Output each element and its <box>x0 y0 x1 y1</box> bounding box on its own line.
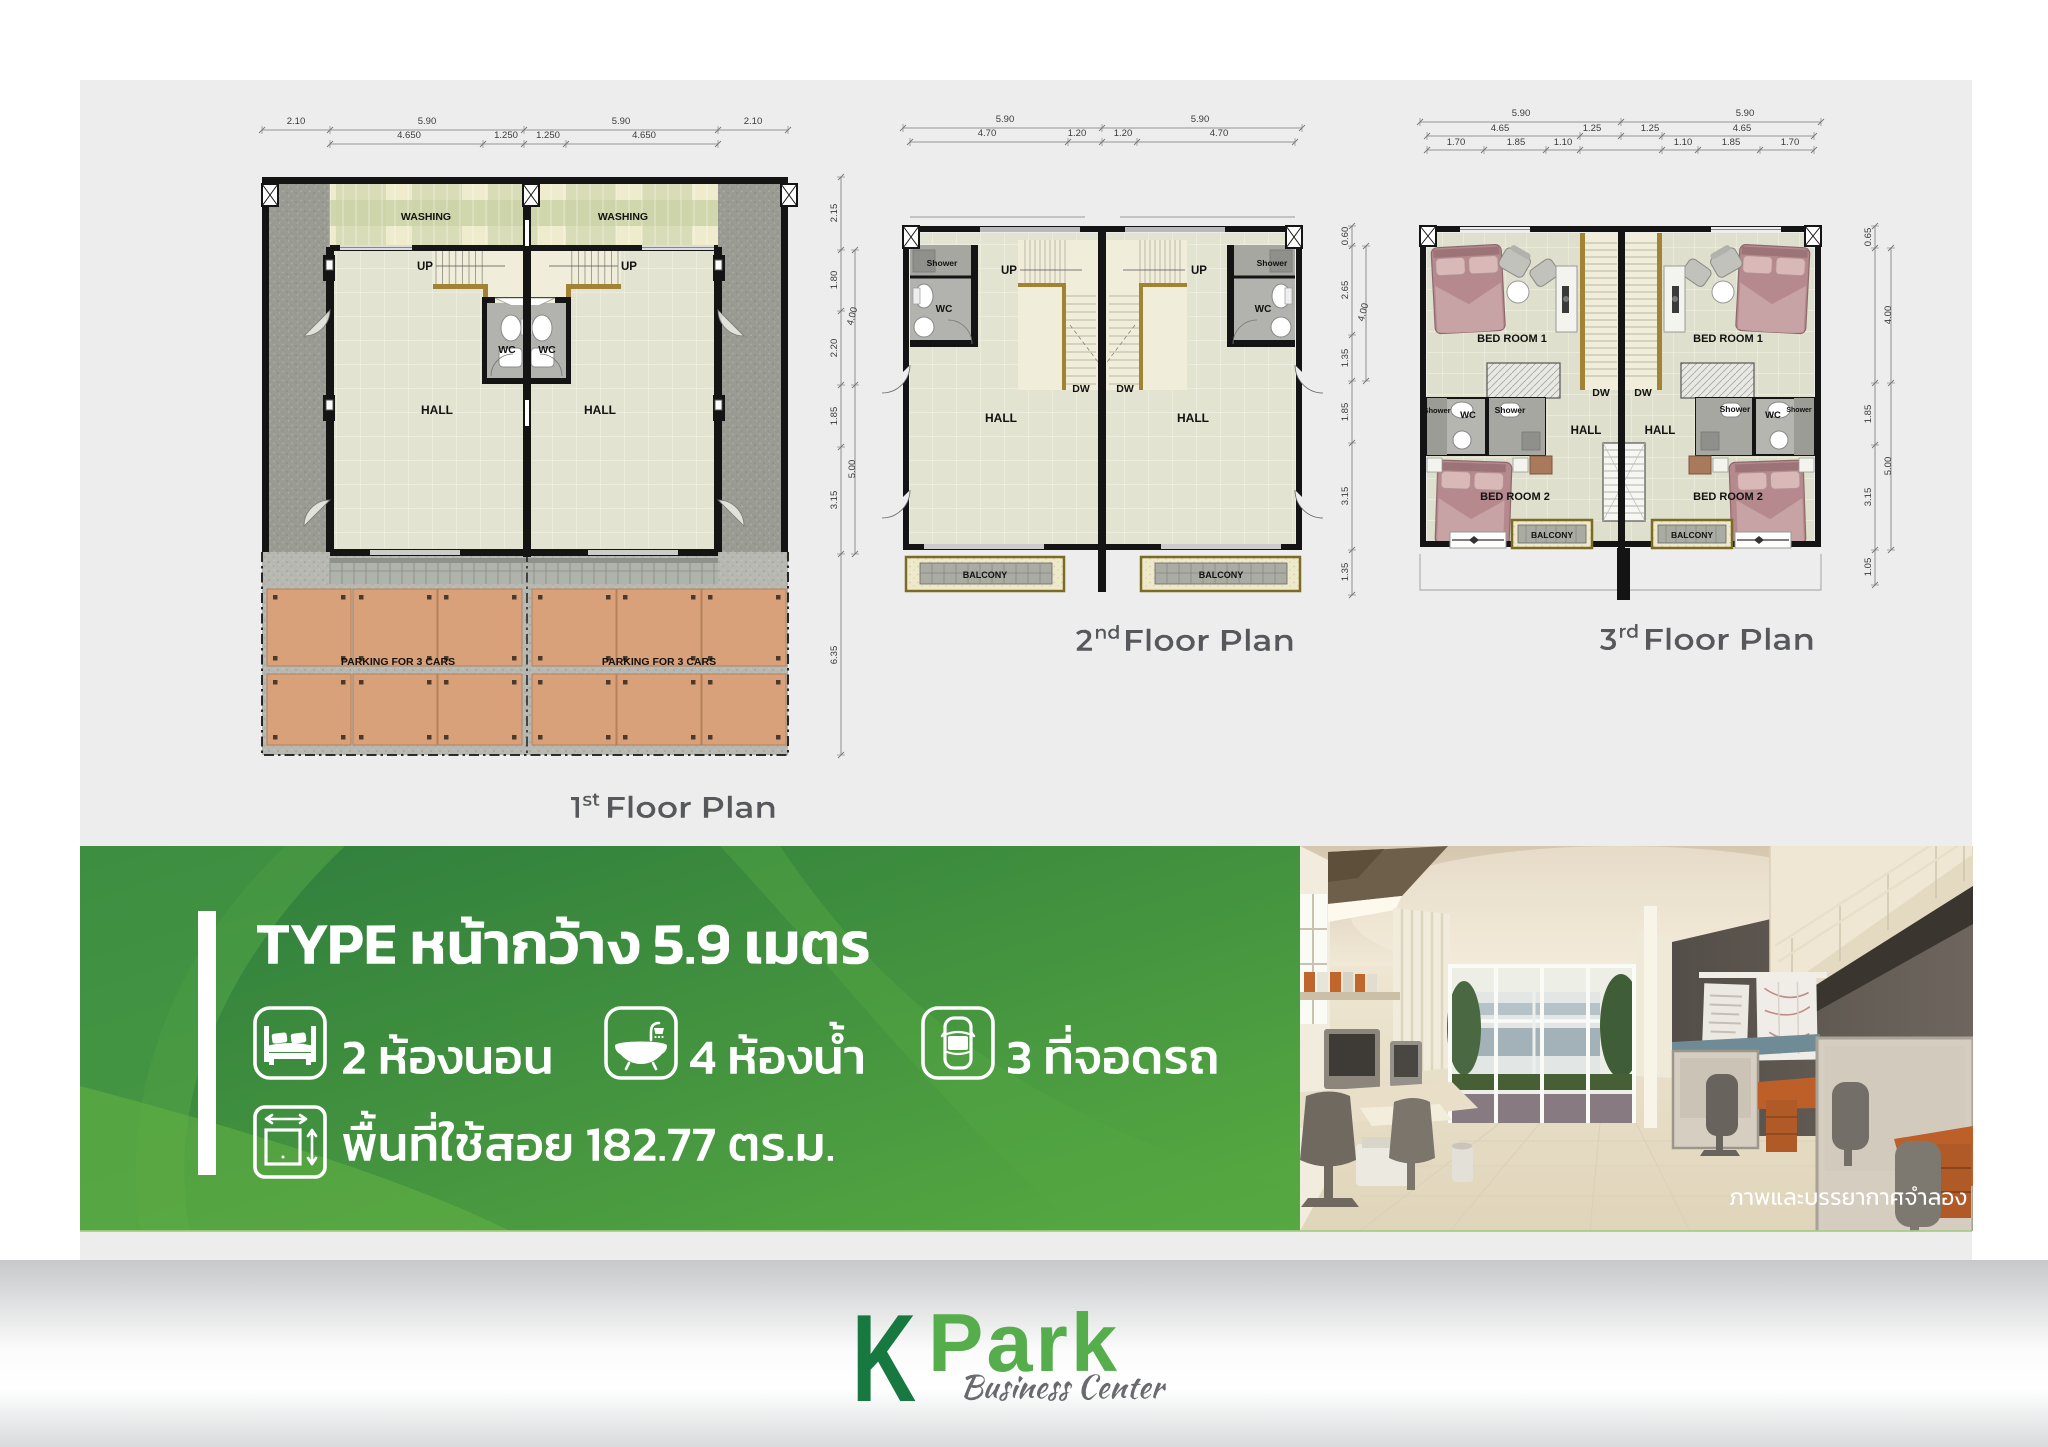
svg-text:Park: Park <box>928 1296 1120 1389</box>
svg-text:K: K <box>852 1295 916 1425</box>
